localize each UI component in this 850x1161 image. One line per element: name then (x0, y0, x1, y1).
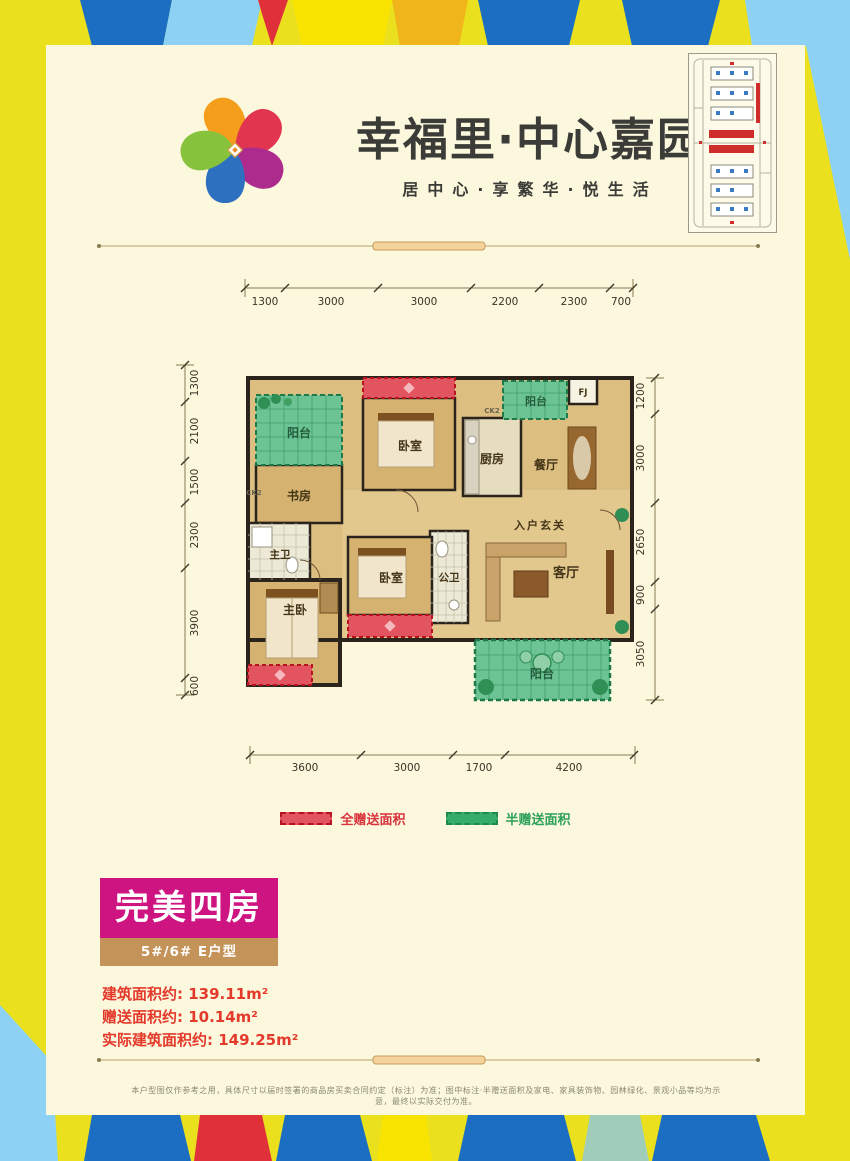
room-label-living: 客厅 (553, 565, 579, 581)
room-label-entry: 入户玄关 (514, 518, 566, 532)
room-label-balcony-tl: 阳台 (287, 425, 311, 440)
room-label-shaft: FJ (579, 388, 588, 398)
room-label-kitchen: 厨房 (480, 451, 504, 466)
site-plan-map (688, 53, 777, 233)
room-label-study: 书房 (287, 488, 311, 503)
dim-top: 3000 (411, 296, 438, 308)
dim-right: 3050 (635, 641, 647, 668)
dim-right: 1200 (635, 383, 647, 410)
dim-bottom: 3000 (394, 762, 421, 774)
room-label-guest-bath: 公卫 (439, 572, 460, 584)
dim-top: 1300 (252, 296, 279, 308)
full-gift-label: 全赠送面积 (340, 809, 405, 828)
dim-top: 3000 (318, 296, 345, 308)
dim-right: 3000 (635, 445, 647, 472)
room-label-master-bath: 主卫 (270, 548, 291, 561)
room-label-dining: 餐厅 (534, 457, 558, 472)
room-label-bedroom-top: 卧室 (398, 438, 422, 453)
room-label-master-bed: 主卧 (283, 602, 307, 617)
dim-top: 2200 (492, 296, 519, 308)
poster-card: 幸福里·中心嘉园 居中心·享繁华·悦生活 (46, 45, 805, 1115)
dim-right: 2650 (635, 529, 647, 556)
dim-left: 1500 (189, 469, 201, 496)
disclaimer-text: 本户型图仅作参考之用，具体尺寸以届时签署的商品房买卖合同约定（标注）为准；图中标… (126, 1085, 726, 1107)
dim-top: 2300 (561, 296, 588, 308)
dim-left: 1300 (189, 370, 201, 397)
unit-type-banner: 5#/6# E户型 (100, 938, 278, 966)
gift-area-legend: 全赠送面积 半赠送面积 (46, 809, 805, 828)
dim-top: 700 (611, 296, 631, 308)
dim-bottom: 4200 (556, 762, 583, 774)
brand-flower-logo (174, 87, 296, 209)
area-stats: 建筑面积约: 139.11m² 赠送面积约: 10.14m² 实际建筑面积约: … (102, 983, 298, 1052)
headline-banner: 完美四房 (100, 878, 278, 938)
room-label-bedroom-mid: 卧室 (379, 570, 403, 585)
window-code: CK2 (484, 407, 500, 415)
half-gift-label: 半赠送面积 (506, 809, 571, 828)
dim-bottom: 3600 (292, 762, 319, 774)
dim-left: 3900 (189, 610, 201, 637)
divider-top (95, 239, 762, 253)
legend-half-gift: 半赠送面积 (446, 809, 571, 828)
room-label-balcony-tr: 阳台 (525, 394, 547, 408)
stat-built-area: 建筑面积约: 139.11m² (102, 983, 298, 1006)
floor-plan: 阳台 书房 主卫 主卧 卧室 卧室 厨房 餐厅 阳台 FJ 入户玄关 公卫 客厅… (170, 265, 670, 790)
half-gift-swatch (446, 812, 498, 825)
dim-right: 900 (635, 585, 647, 605)
full-gift-swatch (280, 812, 332, 825)
dim-left: 600 (189, 676, 201, 696)
divider-bottom (95, 1053, 762, 1067)
dim-left: 2300 (189, 522, 201, 549)
window-code: CK2 (246, 489, 262, 497)
legend-full-gift: 全赠送面积 (280, 809, 405, 828)
stat-gift-area: 赠送面积约: 10.14m² (102, 1006, 298, 1029)
room-label-balcony-bottom: 阳台 (530, 666, 554, 681)
dim-bottom: 1700 (466, 762, 493, 774)
stat-actual-area: 实际建筑面积约: 149.25m² (102, 1029, 298, 1052)
dim-left: 2100 (189, 418, 201, 445)
